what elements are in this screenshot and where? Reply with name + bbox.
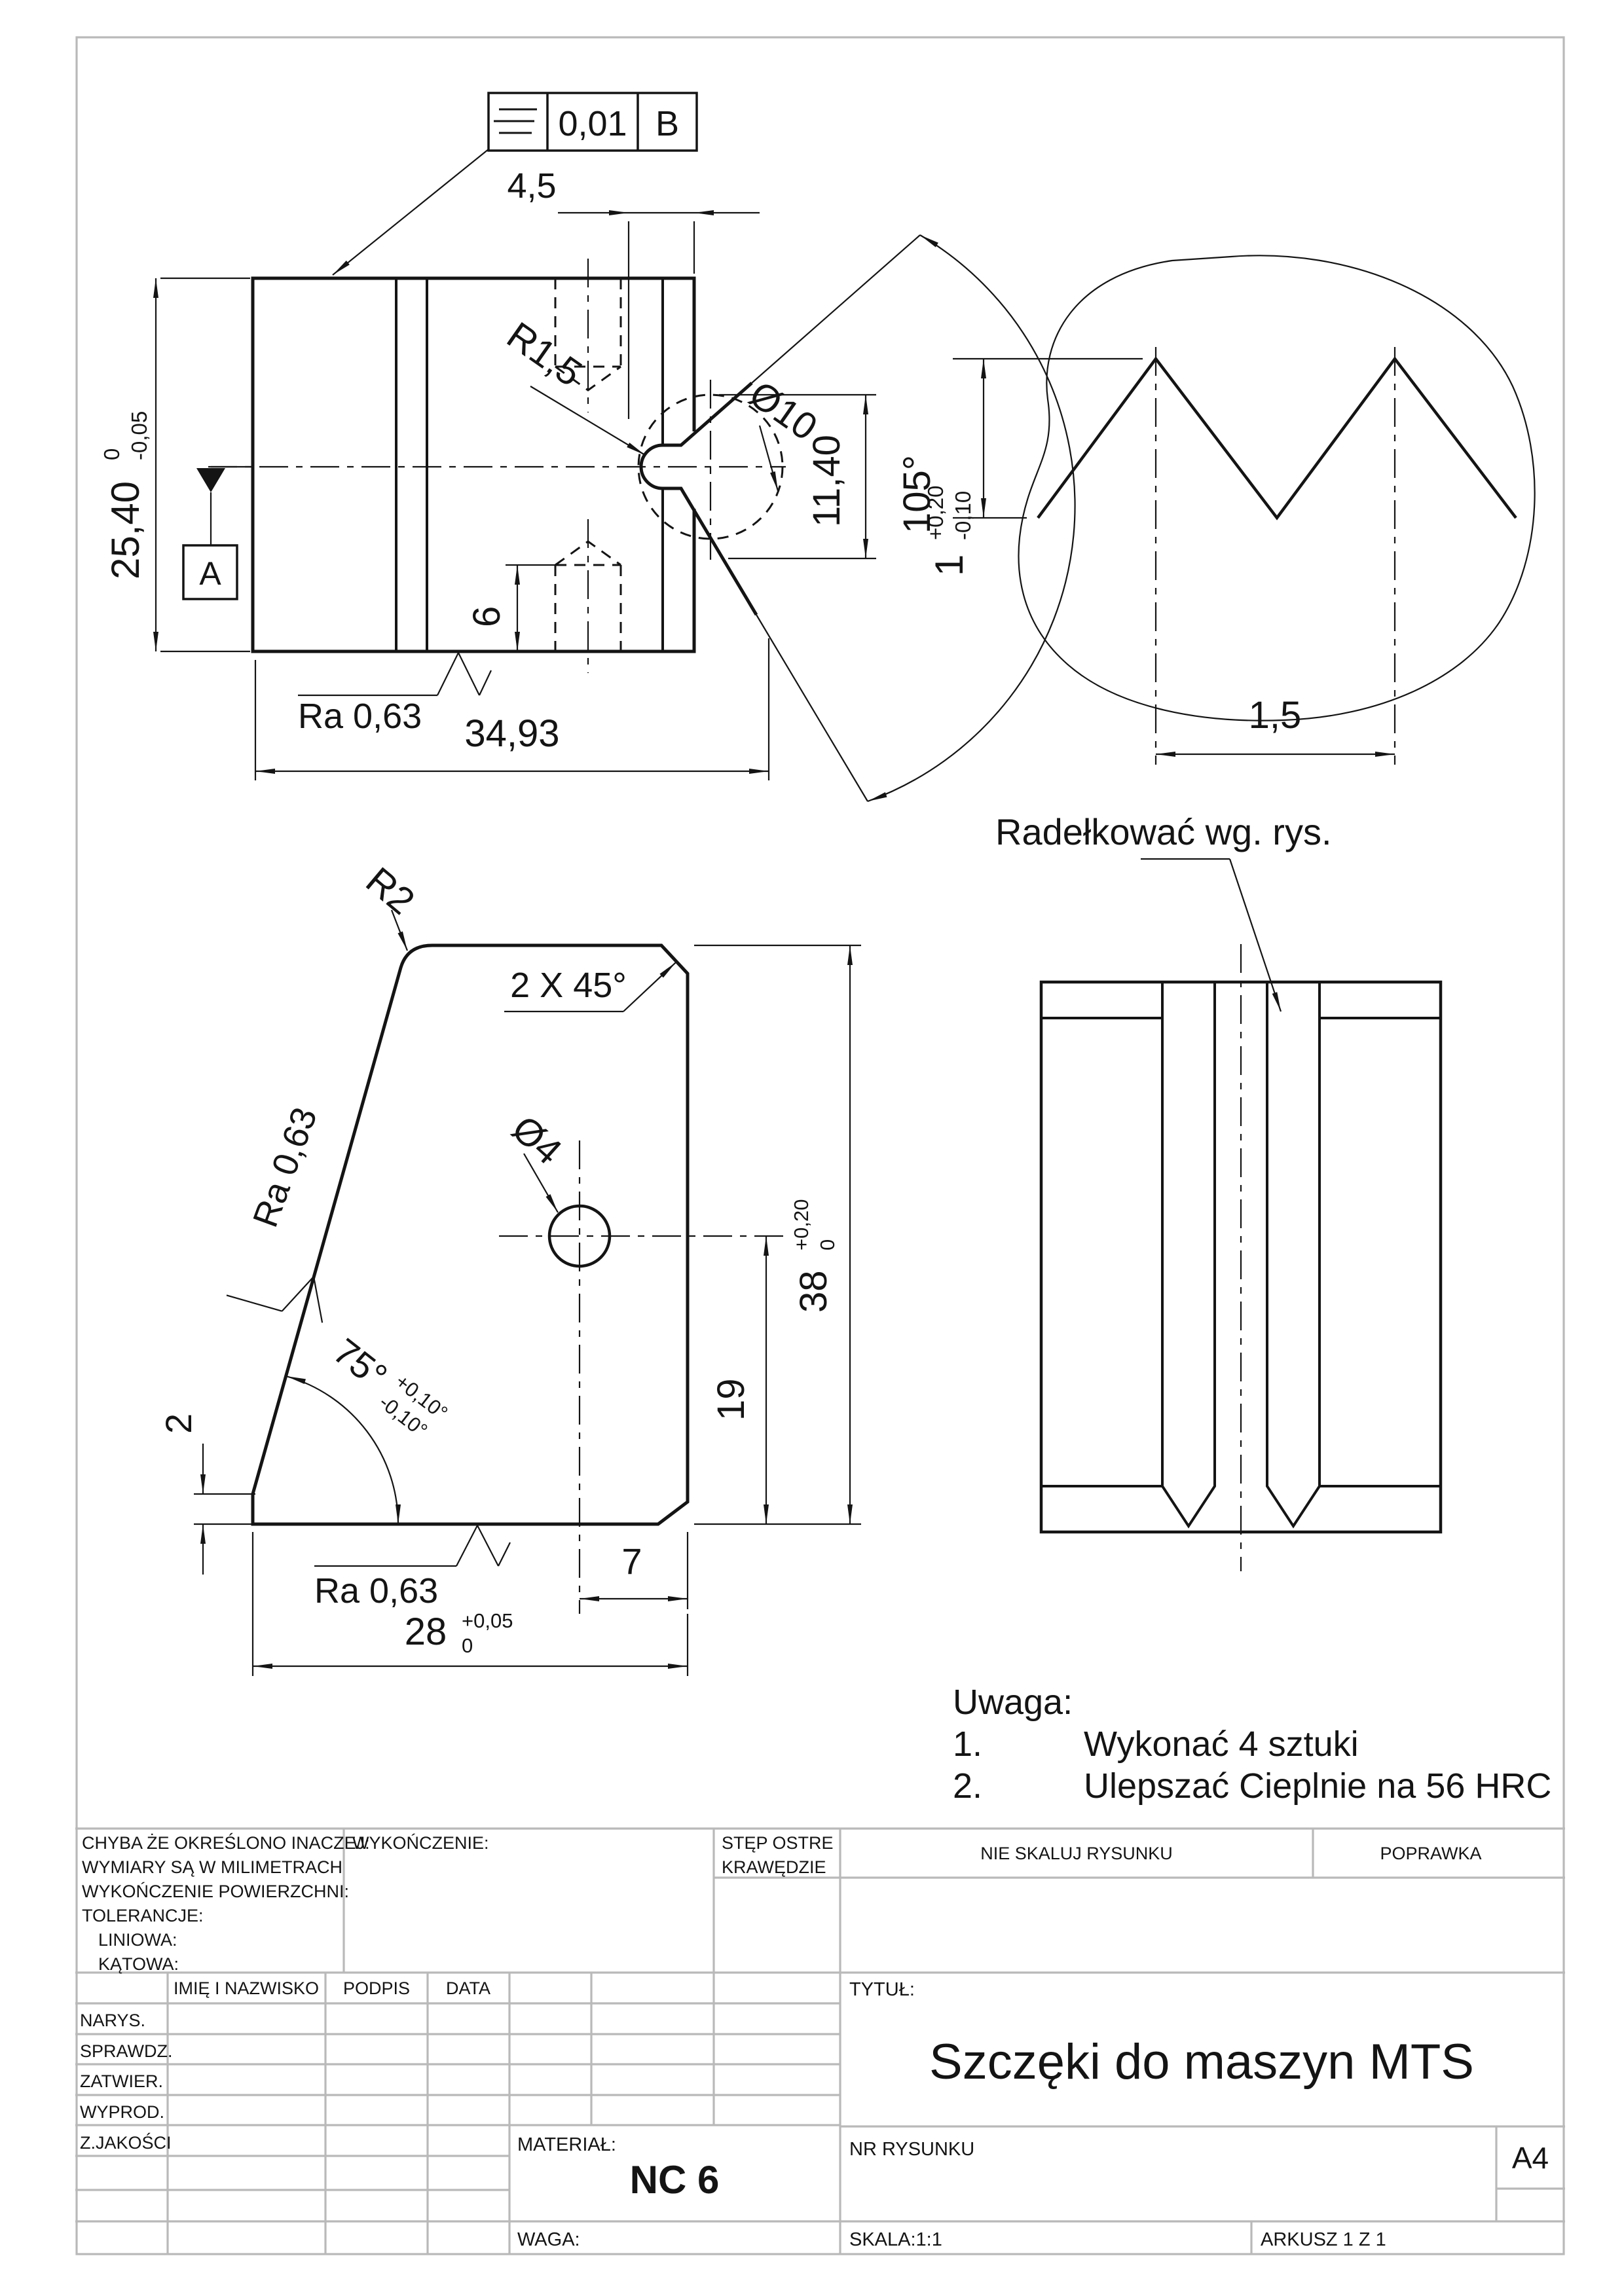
drawing-title: Szczęki do maszyn MTS — [929, 2034, 1474, 2090]
notes-block: Uwaga: 1. Wykonać 4 sztuki 2. Ulepszać C… — [953, 1683, 1551, 1806]
tol-lower: -0,10 — [951, 491, 975, 540]
drawing-sheet: 0,01 B 4,5 25,40 0 — [0, 0, 1624, 2296]
material-value: NC 6 — [630, 2158, 720, 2202]
dim-label: 38 — [792, 1270, 835, 1313]
note-2-text: Ulepszać Cieplnie na 56 HRC — [1084, 1766, 1551, 1806]
dim-label: 34,93 — [464, 712, 559, 755]
note-2-number: 2. — [953, 1766, 982, 1806]
general-note-line: CHYBA ŻE OKREŚLONO INACZEJ: — [82, 1832, 370, 1853]
note-1-text: Wykonać 4 sztuki — [1084, 1724, 1359, 1764]
roughness-bottom: Ra 0,63 — [314, 1525, 510, 1611]
front-view: 0,01 B 4,5 25,40 0 — [100, 93, 1075, 801]
gdt-tolerance-value: 0,01 — [558, 104, 627, 143]
general-note-line: LINIOWA: — [98, 1930, 177, 1950]
tol-lower: -0,05 — [127, 411, 151, 460]
row-label-sprawdz: SPRAWDZ. — [80, 2041, 173, 2061]
dim-25-40: 25,40 0 -0,05 — [100, 278, 250, 651]
revision-label: POPRAWKA — [1380, 1844, 1481, 1863]
tol-upper: 0 — [100, 448, 124, 460]
row-label-zatwier: ZATWIER. — [80, 2071, 163, 2091]
dim-label: 4,5 — [507, 166, 556, 206]
tol-lower: 0 — [816, 1239, 839, 1250]
surface-finish-icon — [456, 1525, 498, 1566]
profile-view: Ø4 2 X 45° R2 Ra 0,63 — [158, 859, 861, 1676]
knurl-detail-view: 1 +0,20 -0,10 1,5 — [923, 255, 1535, 765]
datum-triangle-icon — [196, 468, 225, 492]
dim-label: Ø4 — [504, 1107, 570, 1173]
roughness-slant: Ra 0,63 — [227, 1102, 334, 1322]
dim-d4: Ø4 — [504, 1107, 570, 1212]
title-block-text: CHYBA ŻE OKREŚLONO INACZEJ: WYMIARY SĄ W… — [80, 1832, 1549, 2250]
dim-knurl-depth: 1 +0,20 -0,10 — [923, 359, 1143, 576]
dim-label: 75° — [326, 1330, 396, 1397]
general-note-line: TOLERANCJE: — [82, 1906, 204, 1925]
col-header-name: IMIĘ I NAZWISKO — [174, 1978, 319, 1998]
finish-label: WYKOŃCZENIE: — [352, 1833, 489, 1853]
cad-drawing-canvas: 0,01 B 4,5 25,40 0 — [0, 0, 1624, 2296]
dim-label: 1 — [927, 555, 971, 576]
row-label-narys: NARYS. — [80, 2011, 145, 2030]
dim-38: 38 +0,20 0 — [694, 945, 861, 1524]
general-note-line: WYMIARY SĄ W MILIMETRACH — [82, 1857, 342, 1877]
dim-2: 2 — [158, 1413, 255, 1575]
knurl-profile-zigzag — [1038, 359, 1516, 518]
symmetry-icon — [494, 109, 537, 133]
col-header-date: DATA — [446, 1978, 490, 1998]
drawing-no-label: NR RYSUNKU — [849, 2139, 974, 2160]
row-label-zjakosci: Z.JAKOŚCI — [80, 2132, 172, 2153]
knurl-strip-right — [1267, 982, 1319, 1526]
side-view: Radełkować wg. rys. — [995, 811, 1441, 1571]
dim-label: 1,5 — [1249, 694, 1302, 737]
dim-label: 6 — [466, 606, 508, 627]
dim-label: 11,40 — [805, 435, 848, 527]
tol-lower: 0 — [462, 1634, 473, 1657]
gdt-datum-ref: B — [655, 104, 679, 143]
dim-7: 7 — [580, 1532, 688, 1609]
material-label: MATERIAŁ: — [517, 2134, 616, 2155]
v-notch-groove — [641, 383, 756, 615]
detail-blob-outline — [1019, 255, 1535, 720]
dim-75: 75° +0,10° -0,10° — [286, 1328, 452, 1524]
format-label: A4 — [1512, 2141, 1549, 2175]
dim-label: 7 — [621, 1540, 642, 1582]
dim-label: 28 — [405, 1611, 447, 1653]
dim-4-5: 4,5 — [507, 166, 760, 419]
dim-chamfer: 2 X 45° — [504, 962, 676, 1011]
dim-label: 25,40 — [103, 481, 147, 579]
tol-upper: +0,20 — [923, 486, 948, 541]
roughness-label: Ra 0,63 — [246, 1102, 325, 1232]
dim-label: R2 — [358, 859, 423, 922]
dim-label: 2 — [158, 1413, 199, 1434]
weight-label: WAGA: — [517, 2229, 580, 2250]
scale-label: SKALA:1:1 — [849, 2229, 942, 2250]
dim-knurl-pitch: 1,5 — [1156, 694, 1395, 754]
datum-label: A — [199, 555, 221, 592]
roughness-front: Ra 0,63 — [298, 653, 491, 736]
knurl-strip-left — [1162, 982, 1215, 1526]
tol-upper: +0,05 — [462, 1609, 513, 1632]
col-header-signature: PODPIS — [343, 1978, 410, 1998]
dim-6: 6 — [466, 565, 561, 651]
profile-outline — [253, 945, 688, 1524]
dim-r2: R2 — [358, 859, 423, 951]
dim-r1-5: R1,5 — [500, 314, 645, 455]
edges-label-line2: KRAWĘDZIE — [722, 1857, 826, 1877]
no-scale-label: NIE SKALUJ RYSUNKU — [980, 1844, 1173, 1863]
dim-19: 19 — [694, 1236, 861, 1524]
title-label: TYTUŁ: — [849, 1979, 915, 2000]
dim-label: 19 — [710, 1378, 752, 1421]
dim-label: 2 X 45° — [510, 966, 627, 1005]
notes-heading: Uwaga: — [953, 1683, 1073, 1722]
roughness-label: Ra 0,63 — [298, 697, 422, 736]
edges-label-line1: STĘP OSTRE — [722, 1833, 834, 1853]
sheet-label: ARKUSZ 1 Z 1 — [1261, 2229, 1386, 2250]
tol-upper: +0,20 — [790, 1199, 813, 1250]
note-label: Radełkować wg. rys. — [995, 811, 1332, 852]
general-note-line: KĄTOWA: — [98, 1954, 179, 1974]
datum-a-symbol: A — [183, 467, 253, 599]
note-1-number: 1. — [953, 1724, 982, 1764]
row-label-wyprod: WYPROD. — [80, 2102, 164, 2122]
general-note-line: WYKOŃCZENIE POWIERZCHNI: — [82, 1882, 349, 1901]
roughness-label: Ra 0,63 — [314, 1571, 438, 1611]
surface-finish-icon — [437, 653, 479, 695]
